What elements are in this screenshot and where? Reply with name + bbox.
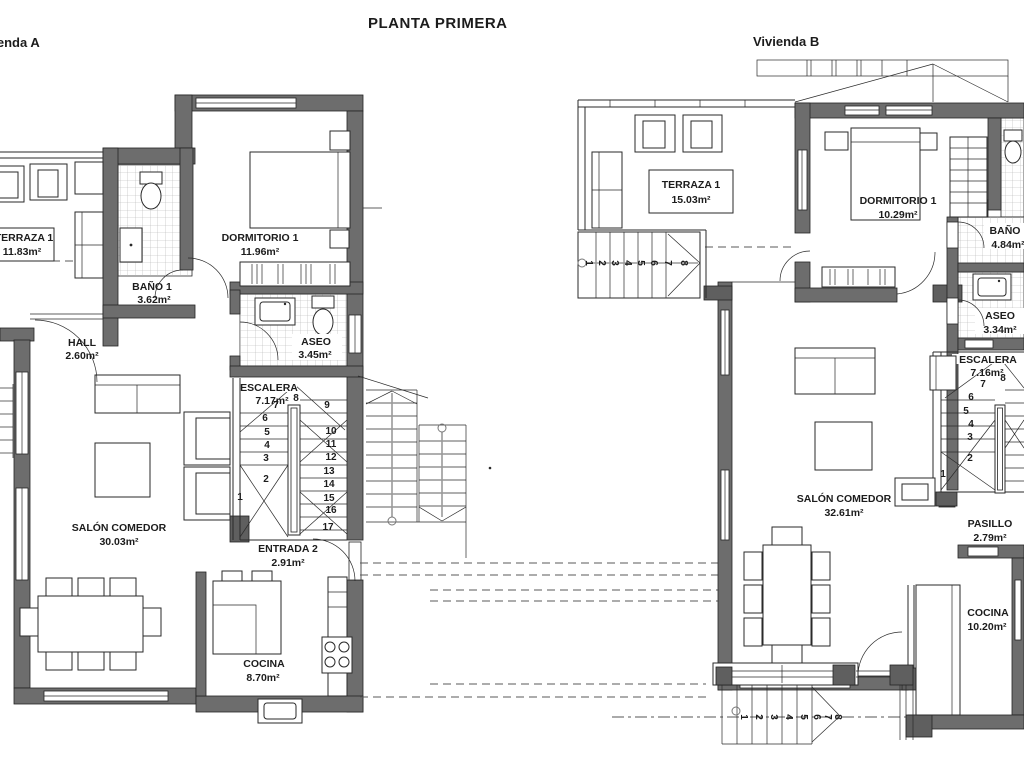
plan-b-ext-bottom-numbers: 1 2 3 4 5 6 7 8 [738,714,843,720]
svg-text:8: 8 [678,260,689,266]
svg-text:14: 14 [323,479,335,490]
floorplan-drawing: PLANTA PRIMERA Vivienda A Vivienda B [0,0,1024,777]
room-area: 4.84m² [991,239,1024,251]
room-area: 11.83m² [3,246,42,258]
room-area: 3.62m² [137,294,171,306]
room-label: COCINA [967,607,1009,619]
svg-text:2: 2 [753,714,764,720]
chair-icon [744,552,762,580]
page-title: PLANTA PRIMERA [368,15,508,32]
room-area: 2.91m² [271,557,305,569]
svg-text:2: 2 [967,453,973,464]
chair-icon [110,652,136,670]
chair-icon [744,618,762,646]
room-label: ASEO [985,310,1015,322]
svg-text:7: 7 [980,379,986,390]
svg-text:1: 1 [237,492,243,503]
room-area: 7.17m² [255,395,289,407]
room-area: 8.70m² [246,672,280,684]
chair-icon [812,618,830,646]
room-label: TERRAZA 1 [0,232,53,244]
room-label: ENTRADA 2 [258,543,318,555]
room-label: SALÓN COMEDOR [72,521,167,534]
chair-icon [78,578,104,596]
svg-text:8: 8 [293,393,299,404]
toilet-icon [313,309,333,335]
toilet-tank-icon [1004,130,1022,141]
room-area: 10.29m² [878,209,918,221]
svg-text:6: 6 [262,413,268,424]
room-label: COCINA [243,658,285,670]
plan-a: 1 2 3 4 5 6 7 8 9 10 11 12 13 14 15 16 1… [0,95,491,723]
plan-a-exterior-stair [358,376,491,558]
room-area: 2.60m² [65,350,99,362]
plan-a-escalera: 1 2 3 4 5 6 7 8 9 10 11 12 13 14 15 16 1… [233,378,347,540]
svg-text:1: 1 [583,260,594,266]
svg-text:11: 11 [326,439,337,450]
svg-text:13: 13 [323,466,335,477]
plan-b-roof [757,60,1008,102]
plan-b-exterior-stair-top: 1 2 3 4 5 6 7 8 [578,232,700,298]
svg-text:2: 2 [596,260,607,266]
toilet-tank-icon [312,296,334,308]
svg-text:1: 1 [738,714,749,720]
svg-text:5: 5 [635,260,646,266]
nightstand-icon [920,133,937,150]
terraza-label-box [649,170,733,213]
plan-b-pasillo: PASILLO 2.79m² [968,518,1013,544]
room-label: PASILLO [968,518,1013,530]
chair-icon [812,585,830,613]
bed-icon [250,152,350,228]
svg-text:12: 12 [325,452,337,463]
room-label: BAÑO 1 [132,280,172,293]
terrace-table-icon [75,162,103,194]
svg-text:3: 3 [768,714,779,720]
svg-text:17: 17 [322,522,334,533]
plan-a-title: Vivienda A [0,35,40,50]
room-area: 30.03m² [99,536,139,548]
chair-icon [812,552,830,580]
room-label: HALL [68,337,97,349]
svg-text:9: 9 [324,400,330,411]
nightstand-icon [825,132,848,150]
toilet-icon [141,183,161,209]
svg-text:2: 2 [263,474,269,485]
room-label: ESCALERA [240,382,298,394]
wardrobe-icon [240,262,350,286]
chair-icon [46,652,72,670]
room-label: TERRAZA 1 [662,179,721,191]
room-area: 7.16m² [970,367,1004,379]
svg-text:3: 3 [263,453,269,464]
chair-icon [744,585,762,613]
room-area: 10.20m² [967,621,1007,633]
svg-text:7: 7 [662,260,673,266]
svg-text:7: 7 [822,714,833,720]
room-area: 2.79m² [973,532,1007,544]
svg-text:5: 5 [963,406,969,417]
plan-b: TERRAZA 1 15.03m² 1 2 3 4 5 6 7 8 [578,60,1024,744]
room-area: 32.61m² [824,507,864,519]
sofa-icon [95,375,180,413]
svg-text:8: 8 [1000,373,1006,384]
room-label: ASEO [301,336,331,348]
chair-icon [20,608,38,636]
room-area: 3.34m² [983,324,1017,336]
chair-icon [110,578,136,596]
svg-text:15: 15 [323,493,335,504]
room-label: ESCALERA [959,354,1017,366]
svg-text:16: 16 [325,505,337,516]
room-label: DORMITORIO 1 [222,232,299,244]
svg-text:6: 6 [648,260,659,266]
dining-table-icon [38,596,143,652]
nightstand-icon [330,131,350,150]
room-label: BAÑO [990,224,1021,237]
room-area: 11.96m² [241,246,280,258]
coffee-table-icon [95,443,150,497]
svg-text:6: 6 [811,714,822,720]
dining-table-icon [763,545,811,645]
floorplan-sheet: PLANTA PRIMERA Vivienda A Vivienda B [0,0,1024,777]
plan-b-exterior-stair-bottom: 1 2 3 4 5 6 7 8 [713,663,913,744]
wardrobe-icon [950,137,987,217]
plan-b-ext-top-numbers: 1 2 3 4 5 6 7 8 [583,260,689,266]
chair-icon [143,608,161,636]
svg-text:8: 8 [832,714,843,720]
room-area: 3.45m² [298,349,332,361]
kitchen-counter-icon [213,581,281,654]
nightstand-icon [330,230,349,248]
toilet-icon [1005,141,1021,163]
chair-icon [46,578,72,596]
toilet-tank-icon [140,172,162,184]
svg-text:6: 6 [968,392,974,403]
svg-text:4: 4 [968,419,974,430]
chair-icon [78,652,104,670]
svg-text:10: 10 [325,426,337,437]
plan-b-title: Vivienda B [753,34,819,49]
plan-b-cocina: COCINA 10.20m² [902,585,1009,737]
room-area: 15.03m² [671,194,711,206]
svg-text:5: 5 [264,427,270,438]
room-label: SALÓN COMEDOR [797,492,892,505]
plan-a-left-planter [0,384,13,458]
svg-text:1: 1 [940,469,946,480]
wardrobe-icon [822,267,895,287]
svg-text:3: 3 [967,432,973,443]
chair-icon [772,645,802,663]
chair-icon [772,527,802,545]
svg-text:5: 5 [798,714,809,720]
stove-icon [322,637,352,673]
dashed-connectors [360,247,932,717]
svg-text:4: 4 [783,714,794,720]
svg-text:4: 4 [622,260,633,266]
svg-text:3: 3 [609,260,620,266]
coffee-table-icon [815,422,872,470]
tv-cabinet-icon [930,356,956,390]
svg-text:4: 4 [264,440,270,451]
room-label: DORMITORIO 1 [860,195,937,207]
kitchen-counter-icon [916,585,960,715]
